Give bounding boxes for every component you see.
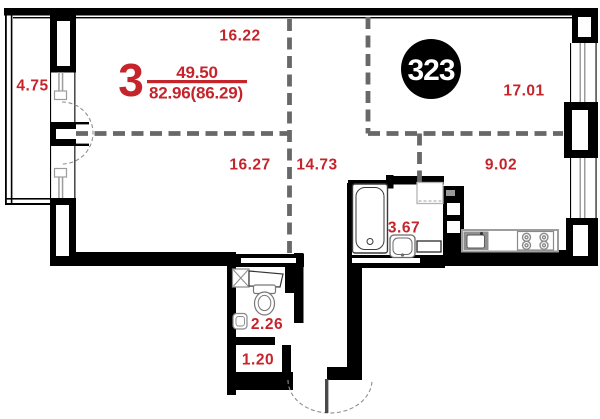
right-window-bottom <box>580 158 582 218</box>
hallway-area-label: 14.73 <box>296 157 337 174</box>
room-top-right-area-label: 17.01 <box>503 83 544 100</box>
zone-divider-lines <box>76 17 563 253</box>
living-area: 49.50 <box>176 63 218 82</box>
floor-plan-drawing: 323 3 49.50 82.96(86.29) 4.75 16.22 17.0… <box>0 0 600 419</box>
door-jamb-stub-top <box>76 122 89 124</box>
rooms-count: 3 <box>118 54 144 106</box>
bathroom-sink-icon <box>390 235 415 258</box>
kitchen-sink-icon <box>464 232 489 251</box>
apartment-number: 323 <box>407 54 454 87</box>
bathroom-area-label: 3.67 <box>388 220 420 237</box>
toilet-icon <box>254 285 276 315</box>
floor-plan-page: 323 3 49.50 82.96(86.29) 4.75 16.22 17.0… <box>0 0 600 419</box>
balcony-window-top <box>58 72 60 93</box>
bathroom-cabinet <box>417 183 443 204</box>
top-wall-inner-line <box>13 17 575 18</box>
vestibule-right-wall <box>347 255 362 372</box>
room-area-labels: 4.75 16.22 17.01 16.27 14.73 9.02 3.67 2… <box>16 28 544 369</box>
room-top-left-area-label: 16.22 <box>219 28 260 45</box>
outer-walls <box>4 8 598 395</box>
entrance-door-leaf <box>325 379 328 413</box>
door-jamb-stub-bottom <box>76 144 89 146</box>
wc-storage-divider <box>227 337 275 345</box>
apartment-info: 3 49.50 82.96(86.29) <box>118 54 247 106</box>
right-window-top <box>580 43 582 102</box>
wc-right-wall <box>294 253 304 323</box>
storage-bottom-wall <box>227 372 293 390</box>
balcony-glazed-wall <box>5 13 52 205</box>
bathtub-icon <box>353 184 388 253</box>
duct-grille <box>446 190 455 196</box>
stove-icon <box>518 232 554 251</box>
washing-machine-icon <box>233 269 250 287</box>
entrance-wall <box>327 367 362 380</box>
kitchen-counter <box>462 230 558 252</box>
wc-sink-icon <box>233 314 247 330</box>
top-wall <box>4 8 598 16</box>
bathroom-counter <box>417 241 441 252</box>
balcony-area-label: 4.75 <box>16 78 48 95</box>
bathroom-left-wall <box>347 183 352 255</box>
apartment-number-badge: 323 <box>401 39 461 99</box>
bottom-left-wall <box>50 252 236 266</box>
room-bottom-left-area-label: 16.27 <box>229 157 270 174</box>
balcony-window-bottom <box>58 176 60 198</box>
wc-area-label: 2.26 <box>251 316 283 333</box>
kitchen-area-label: 9.02 <box>485 157 517 174</box>
storage-area-label: 1.20 <box>242 352 274 369</box>
total-area: 82.96(86.29) <box>149 84 243 103</box>
entrance-door-arc <box>288 380 372 413</box>
